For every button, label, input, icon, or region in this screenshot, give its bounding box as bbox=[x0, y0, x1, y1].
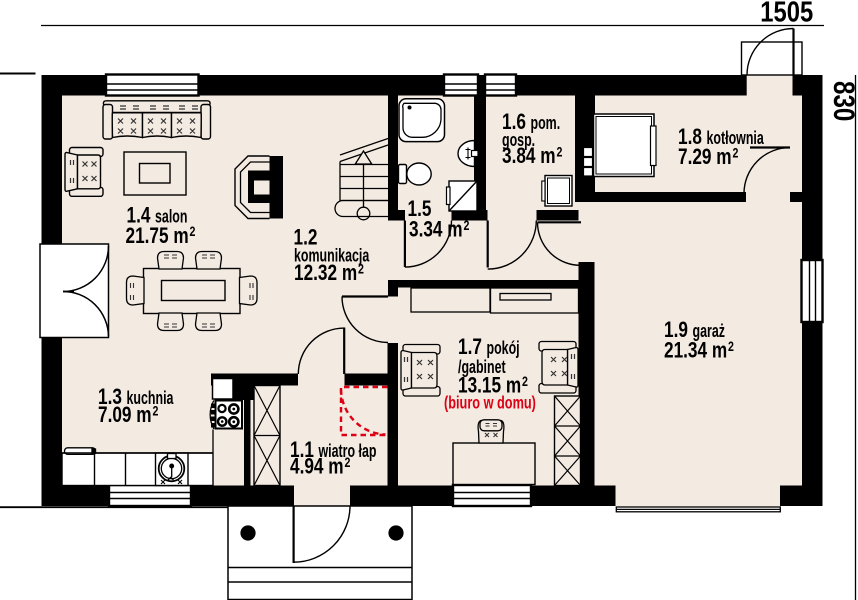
svg-text:2: 2 bbox=[557, 144, 563, 160]
svg-text:1505: 1505 bbox=[760, 0, 813, 28]
svg-text:2: 2 bbox=[728, 339, 734, 355]
svg-text:12.32 m: 12.32 m bbox=[294, 261, 357, 285]
svg-text:2: 2 bbox=[345, 455, 351, 471]
svg-text:3.34 m: 3.34 m bbox=[409, 218, 463, 242]
svg-text:2: 2 bbox=[358, 261, 364, 277]
svg-text:2: 2 bbox=[733, 145, 739, 161]
svg-text:2: 2 bbox=[190, 224, 196, 240]
svg-text:7.29 m: 7.29 m bbox=[678, 145, 732, 169]
svg-text:21.75 m: 21.75 m bbox=[126, 224, 189, 248]
svg-text:2: 2 bbox=[522, 374, 528, 390]
svg-text:830: 830 bbox=[827, 81, 858, 121]
svg-text:7.09 m: 7.09 m bbox=[98, 403, 152, 427]
svg-text:2: 2 bbox=[153, 403, 159, 419]
svg-text:pokój: pokój bbox=[487, 339, 520, 359]
svg-text:2: 2 bbox=[464, 218, 470, 234]
svg-text:3.84 m: 3.84 m bbox=[502, 144, 556, 168]
svg-text:21.34 m: 21.34 m bbox=[664, 339, 727, 363]
svg-text:4.94 m: 4.94 m bbox=[290, 455, 344, 479]
svg-text:1.7: 1.7 bbox=[458, 335, 482, 359]
svg-text:(biuro w domu): (biuro w domu) bbox=[444, 393, 536, 413]
